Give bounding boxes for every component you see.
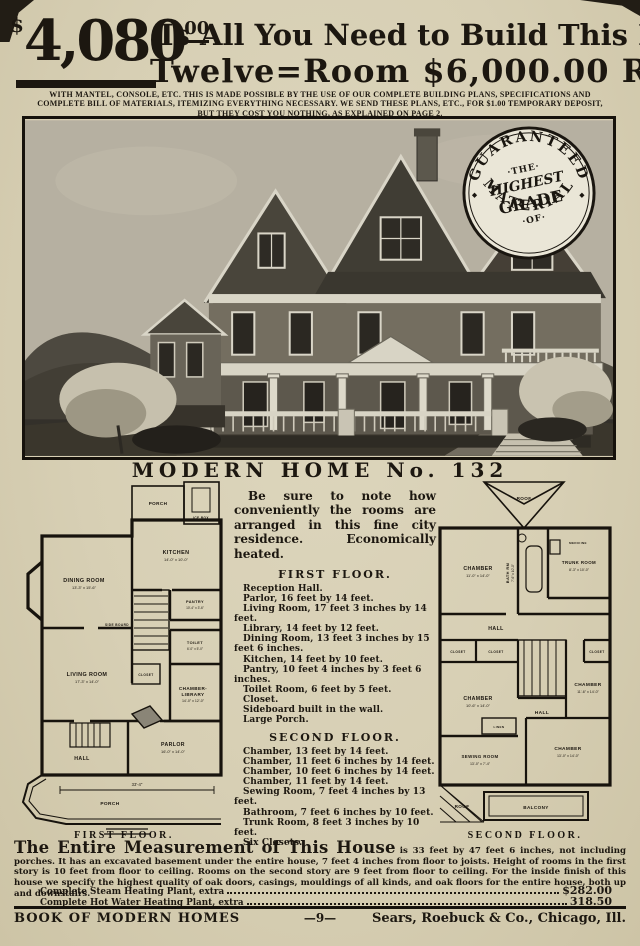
plan-label-parlor: PARLOR	[161, 742, 185, 748]
plan-label-ice-box: ICE BOX	[193, 516, 209, 520]
plan-label-closet-1: CLOSET	[450, 650, 465, 654]
plan-label-hall: HALL	[74, 756, 90, 762]
room-spec: Closet.	[234, 695, 436, 705]
plan-dims-sewing: 13'-0" x 7'-4"	[470, 762, 491, 766]
room-spec: Chamber, 11 feet by 14 feet.	[234, 777, 436, 787]
plan-label-trunk: TRUNK ROOM	[562, 560, 596, 565]
plan-label-chamber-w: CHAMBER	[463, 696, 492, 702]
plan-dims-library: 14'-0" x 12'-0"	[182, 699, 205, 703]
headline-line2: Twelve=Room $6,000.00 Residence	[150, 52, 636, 90]
plan-label-dining: DINING ROOM	[63, 578, 105, 584]
scan-artifact-top-right	[580, 0, 640, 16]
plan-dims-chamber-se: 13'-0" x 14'-0"	[557, 754, 580, 758]
catalog-page: $4,08000 Is All You Need to Build This E…	[0, 0, 640, 946]
plan-label-chamber-e: CHAMBER	[574, 682, 601, 688]
plan-label-bath: BATH RM	[505, 563, 510, 583]
plan-label-roof-top: ROOF	[517, 496, 532, 501]
plan-label-closet-2: CLOSET	[488, 650, 503, 654]
room-spec: Dining Room, 13 feet 3 inches by 15 feet…	[234, 634, 436, 654]
dotted-leader	[247, 902, 567, 905]
first-floor-heading: FIRST FLOOR.	[234, 568, 436, 581]
plan-dims-kitchen: 14'-0" x 10'-0"	[164, 557, 189, 562]
room-spec: Chamber, 11 feet 6 inches by 14 feet.	[234, 757, 436, 767]
plan-label-linen: LINEN	[494, 725, 505, 729]
room-spec: Reception Hall.	[234, 584, 436, 594]
plan-dim-width: 33'-4"	[132, 782, 143, 787]
plan-dims-dining: 13'-3" x 15'-6"	[72, 585, 97, 590]
second-floor-heading: SECOND FLOOR.	[234, 731, 436, 744]
room-spec: Kitchen, 14 feet by 10 feet.	[234, 655, 436, 665]
room-spec: Parlor, 16 feet by 14 feet.	[234, 594, 436, 604]
room-spec: Pantry, 10 feet 4 inches by 3 feet 6 inc…	[234, 665, 436, 685]
room-spec: Living Room, 17 feet 3 inches by 14 feet…	[234, 604, 436, 624]
room-spec: Sideboard built in the wall.	[234, 705, 436, 715]
plan-label-chamber-se: CHAMBER	[554, 746, 581, 752]
plan-label-closet-3: CLOSET	[589, 650, 604, 654]
plan-label-library-2: LIBRARY	[181, 692, 204, 697]
room-spec: Chamber, 10 feet 6 inches by 14 feet.	[234, 767, 436, 777]
plan-dims-toilet: 6'-0" x 5'-0"	[187, 647, 203, 651]
plan-dims-parlor: 16'-0" x 14'-0"	[161, 749, 186, 754]
plan-label-rear-porch: PORCH	[149, 501, 168, 506]
plan-dims-bath: 7'-6" x 10'-0"	[511, 564, 515, 582]
footer-rule	[14, 906, 626, 909]
headline-subtext: WITH MANTEL, CONSOLE, ETC. THIS IS MADE …	[28, 90, 612, 118]
plan-dims-chamber-nw: 11'-0" x 14'-0"	[466, 573, 490, 578]
seal-dot-right: ◆	[579, 191, 585, 199]
footer-book-title: BOOK OF MODERN HOMES	[14, 911, 280, 926]
plan-label-hall-upper: HALL	[488, 626, 504, 632]
plan-label-chamber-nw: CHAMBER	[463, 566, 492, 572]
headline-line1: Is All You Need to Build This Elegant	[160, 18, 632, 52]
plan-caption-second: SECOND FLOOR.	[468, 830, 583, 840]
plan-dims-living: 17'-3" x 14'-0"	[75, 679, 100, 684]
plan-label-closet: CLOSET	[138, 673, 153, 677]
room-spec: Trunk Room, 8 feet 3 inches by 10 feet.	[234, 818, 436, 838]
plan-label-kitchen: KITCHEN	[163, 550, 190, 556]
dotted-leader	[227, 891, 559, 894]
plan-label-toilet: TOILET	[187, 640, 203, 645]
room-spec: Toilet Room, 6 feet by 5 feet.	[234, 685, 436, 695]
price-underline-rule	[16, 80, 156, 88]
measurement-lead: The Entire Measurement of This House	[14, 838, 400, 857]
room-spec: Chamber, 13 feet by 14 feet.	[234, 747, 436, 757]
plan-label-front-porch: PORCH	[100, 801, 119, 807]
price-block: $4,08000	[10, 8, 160, 74]
plan-label-roof-low: ROOF	[455, 804, 470, 809]
plan-dims-chamber-e: 11'-6" x 14'-0"	[577, 690, 600, 694]
footer-page-number: —9—	[280, 911, 360, 925]
plan-label-hall-lower: HALL	[535, 710, 549, 716]
plan-label-medicine: MEDICINE	[569, 541, 587, 545]
plan-label-sideboard: SIDE BOARD	[105, 623, 129, 627]
plan-dims-trunk: 8'-3" x 10'-0"	[569, 568, 590, 572]
seal-dot-left: ◆	[472, 191, 478, 199]
description-column: Be sure to note how conveniently the roo…	[234, 489, 436, 848]
plan-label-balcony: BALCONY	[523, 805, 549, 810]
plan-label-sewing: SEWING ROOM	[461, 754, 498, 759]
intro-paragraph: Be sure to note how conveniently the roo…	[234, 489, 436, 561]
footer-publisher: Sears, Roebuck & Co., Chicago, Ill.	[360, 911, 626, 926]
plan-label-library-1: CHAMBER-	[179, 686, 207, 691]
second-floor-plan: ROOF CHAMBER 11'-0" x 14'-0" BATH RM 7'-…	[426, 478, 624, 840]
plan-dims-pantry: 10'-4" x 3'-6"	[186, 606, 204, 610]
first-floor-plan: PORCH ICE BOX KITCHEN 14'-0" x 10'-0" DI…	[20, 478, 228, 840]
room-spec: Large Porch.	[234, 715, 436, 725]
footer: BOOK OF MODERN HOMES —9— Sears, Roebuck …	[14, 911, 626, 926]
room-spec: Bathroom, 7 feet 6 inches by 10 feet.	[234, 808, 436, 818]
guarantee-seal: GUARANTEED MATERIAL ◆ ◆ ·THE· HIGHEST GR…	[460, 124, 598, 262]
dollar-sign: $	[10, 13, 24, 37]
plan-label-living: LIVING ROOM	[67, 672, 108, 678]
room-spec: Sewing Room, 7 feet 4 inches by 13 feet.	[234, 787, 436, 807]
plan-dims-chamber-w: 10'-6" x 14'-0"	[466, 703, 491, 708]
room-spec: Library, 14 feet by 12 feet.	[234, 624, 436, 634]
plan-label-pantry: PANTRY	[186, 599, 204, 604]
